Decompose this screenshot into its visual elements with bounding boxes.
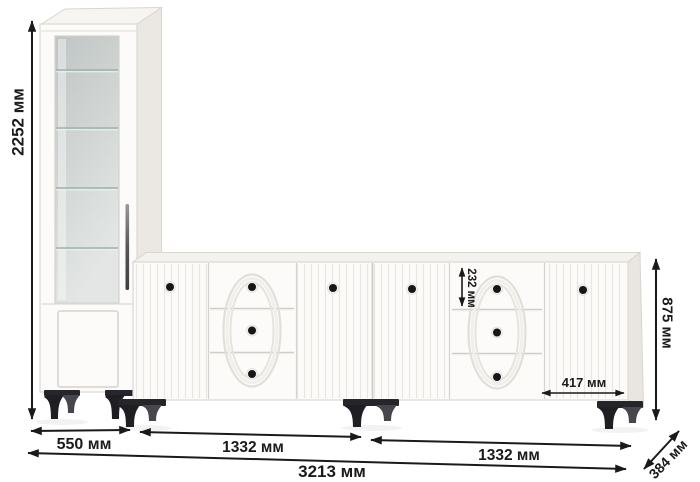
- sideboard-legs: [115, 399, 648, 433]
- sideboard-top-face: [133, 253, 640, 263]
- glass-reflection: [58, 39, 66, 300]
- sideboard-row: [115, 253, 648, 434]
- dimension-label-sideboard1-width: 1332 мм: [222, 439, 284, 456]
- dimension-label-cabinet-width: 550 мм: [57, 436, 112, 453]
- dimension-label-total-height: 2252 мм: [9, 88, 28, 156]
- sideboard-side-face: [628, 253, 644, 408]
- dimension-total-height: 2252 мм: [9, 21, 33, 419]
- cabinet-side-face: [137, 8, 162, 259]
- dimension-sideboard-height: 875 мм: [656, 259, 676, 420]
- dimension-label-total-width: 3213 мм: [298, 462, 366, 481]
- diagram-canvas: 2252 мм 875 мм 232 мм 417 мм 550 мм 1332…: [0, 0, 700, 482]
- dimension-label-sideboard2-width: 1332 мм: [478, 447, 540, 464]
- furniture-dimension-diagram: 2252 мм 875 мм 232 мм 417 мм 550 мм 1332…: [0, 0, 700, 482]
- dimension-label-top-drawer-height: 232 мм: [465, 268, 477, 307]
- dimension-arrow-cabinet-width: [31, 430, 130, 431]
- dimension-arrow-sideboard2-width: [371, 440, 631, 446]
- dimension-label-right-door-width: 417 мм: [562, 375, 607, 390]
- dimension-cabinet-width: 550 мм: [31, 430, 130, 453]
- dimension-sideboard2-width: 1332 мм: [371, 440, 631, 464]
- dimension-sideboard1-width: 1332 мм: [140, 432, 361, 456]
- sideboard-left-module: [135, 263, 371, 399]
- dimension-arrow-sideboard1-width: [140, 432, 361, 437]
- door-handle: [126, 204, 130, 290]
- dimension-label-sideboard-height: 875 мм: [659, 297, 676, 348]
- dimension-depth: 384 мм: [644, 431, 690, 482]
